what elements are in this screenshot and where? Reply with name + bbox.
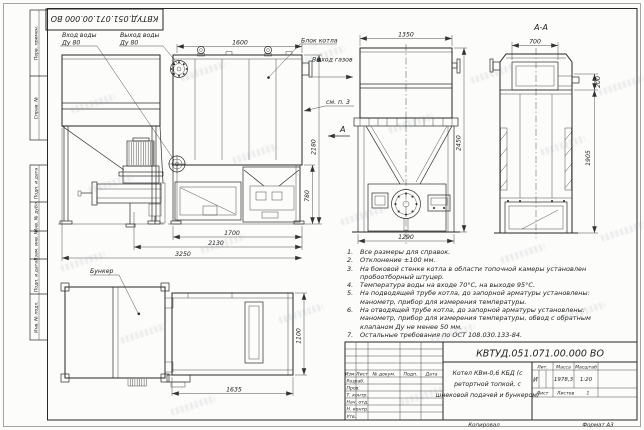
margin-label-podp-data-1: Подп. и дата — [34, 168, 40, 199]
title-name-line-3: шнековой подачей и бункером) — [436, 391, 540, 399]
margin-label-inv-dubl: Инв. № дубл. — [34, 201, 40, 232]
note-number: 4. — [347, 281, 353, 289]
note-item: 1.Все размеры для справок. — [346, 248, 612, 256]
sheet-frame — [4, 4, 641, 427]
note-item: 3.На боковой стенке котла в области топо… — [346, 265, 612, 282]
note-item: 7.Остальные требования по ОСТ 108.030.13… — [346, 331, 612, 339]
dim-780: 780 — [304, 190, 311, 202]
title-name-line-2: ретортной топкой, с — [453, 381, 521, 388]
tb-row-nachotd: Нач. отд. — [347, 399, 369, 405]
note-text: Отклонение ±100 мм. — [360, 256, 436, 264]
note-item: 2.Отклонение ±100 мм. — [346, 256, 612, 264]
label-bunker: Бункер — [90, 268, 113, 275]
note-number: 3. — [347, 265, 353, 273]
tb-header-list2: Лист — [536, 391, 549, 397]
label-gas-outlet: Выход газов — [312, 57, 353, 64]
dim-3250: 3250 — [175, 251, 191, 258]
view-plan-linework — [61, 283, 293, 387]
tb-header-listov: Листов — [556, 391, 574, 397]
label-water-inlet: Вход воды — [62, 32, 97, 39]
dim-2180: 2180 — [311, 139, 318, 155]
dim-1290: 1290 — [398, 234, 414, 241]
dim-200: 200 — [595, 76, 602, 88]
dim-2450: 2450 — [456, 135, 463, 151]
note-item: 5.На подводящей трубе котла, до запорной… — [346, 289, 612, 306]
tb-value-mass: 1978,3 — [554, 377, 574, 383]
tb-value-scale: 1:20 — [580, 377, 593, 383]
note-text: Температура воды на входе 70°С, на выход… — [360, 281, 535, 289]
tb-value-lit: И — [533, 377, 538, 384]
notes-list: 1.Все размеры для справок. 2.Отклонение … — [346, 248, 612, 339]
view-section-linework — [490, 48, 579, 238]
stamp-designation: КВТУД.051.071.00.000 ВО — [51, 14, 159, 23]
margin-label-inv-podl: Инв. № подл. — [34, 301, 40, 333]
sheet-copied-label: Копировал — [468, 423, 500, 429]
dim-700: 700 — [529, 39, 541, 46]
tb-header-doc: № докум. — [372, 371, 396, 377]
note-text: На подводящей трубе котла, до запорной а… — [360, 289, 590, 305]
tb-header-podp: Подп. — [404, 371, 418, 377]
tb-row-razrab: Разраб. — [347, 378, 365, 384]
tb-header-lit: Лит. — [536, 364, 548, 370]
view-front-linework — [352, 44, 460, 244]
dim-2130: 2130 — [208, 240, 224, 247]
tb-header-izm: Изм. — [345, 371, 356, 377]
note-item: 6.На отводящей трубе котла, до запорной … — [346, 306, 612, 331]
view-side-linework — [58, 46, 312, 227]
label-water-outlet: Выход воды — [120, 32, 160, 39]
tb-row-prov: Пров. — [347, 385, 360, 391]
dim-1700: 1700 — [224, 230, 240, 237]
margin-label-perv-primen: Перв. примен. — [34, 26, 40, 61]
tb-row-tkontr: Т. контр. — [347, 392, 368, 398]
margin-label-podp-data-2: Подп. и дата — [34, 261, 40, 292]
label-boiler-block: Блок котла — [301, 38, 338, 45]
title-designation: КВТУД.051.071.00.000 ВО — [476, 349, 604, 360]
note-number: 6. — [347, 306, 353, 314]
margin-label-sprav-no: Справ. № — [34, 97, 40, 120]
note-number: 5. — [347, 289, 353, 297]
note-text: Все размеры для справок. — [360, 248, 450, 256]
label-see-note-3: см. п. 3 — [326, 99, 350, 106]
tb-value-sheets: 1 — [587, 391, 590, 397]
title-name-line-1: Котел КВм-0,6 КБД (с — [452, 370, 523, 377]
note-text: Остальные требования по ОСТ 108.030.133-… — [360, 331, 522, 339]
label-water-inlet-dn: Ду 80 — [61, 40, 80, 47]
note-item: 4.Температура воды на входе 70°С, на вых… — [346, 281, 612, 289]
note-text: На боковой стенке котла в области топочн… — [360, 265, 586, 281]
note-number: 2. — [347, 256, 353, 264]
dim-1600: 1600 — [232, 40, 248, 47]
tb-header-list: Лист — [355, 371, 368, 377]
dim-1350: 1350 — [398, 32, 414, 39]
tb-header-data: Дата — [425, 371, 438, 377]
sheet-format-label: Формат А3 — [582, 423, 614, 429]
note-text: На отводящей трубе котла, до запорной ар… — [360, 306, 591, 331]
section-title: А-А — [533, 23, 548, 32]
note-number: 1. — [347, 248, 353, 256]
drawing-sheet-svg: Перв. примен. Справ. № Подп. и дата Инв.… — [0, 0, 644, 430]
drawing-sheet: Перв. примен. Справ. № Подп. и дата Инв.… — [0, 0, 644, 430]
note-number: 7. — [347, 331, 353, 339]
dim-1100: 1100 — [296, 328, 303, 344]
dim-1635: 1635 — [226, 387, 242, 394]
tb-header-masshtab: Масштаб — [575, 364, 597, 370]
tb-header-massa: Масса — [556, 364, 571, 370]
view-section-dimensions — [512, 42, 598, 233]
section-arrow-letter: А — [339, 125, 345, 134]
tb-row-nkontr: Н. контр. — [347, 407, 369, 413]
tb-row-utv: Утв. — [347, 414, 357, 420]
label-water-outlet-dn: Ду 80 — [119, 40, 138, 47]
margin-label-vzam-inv: Взам. инв. № — [34, 229, 40, 260]
dim-1905: 1905 — [585, 150, 592, 166]
view-side-dimensions — [62, 44, 322, 261]
